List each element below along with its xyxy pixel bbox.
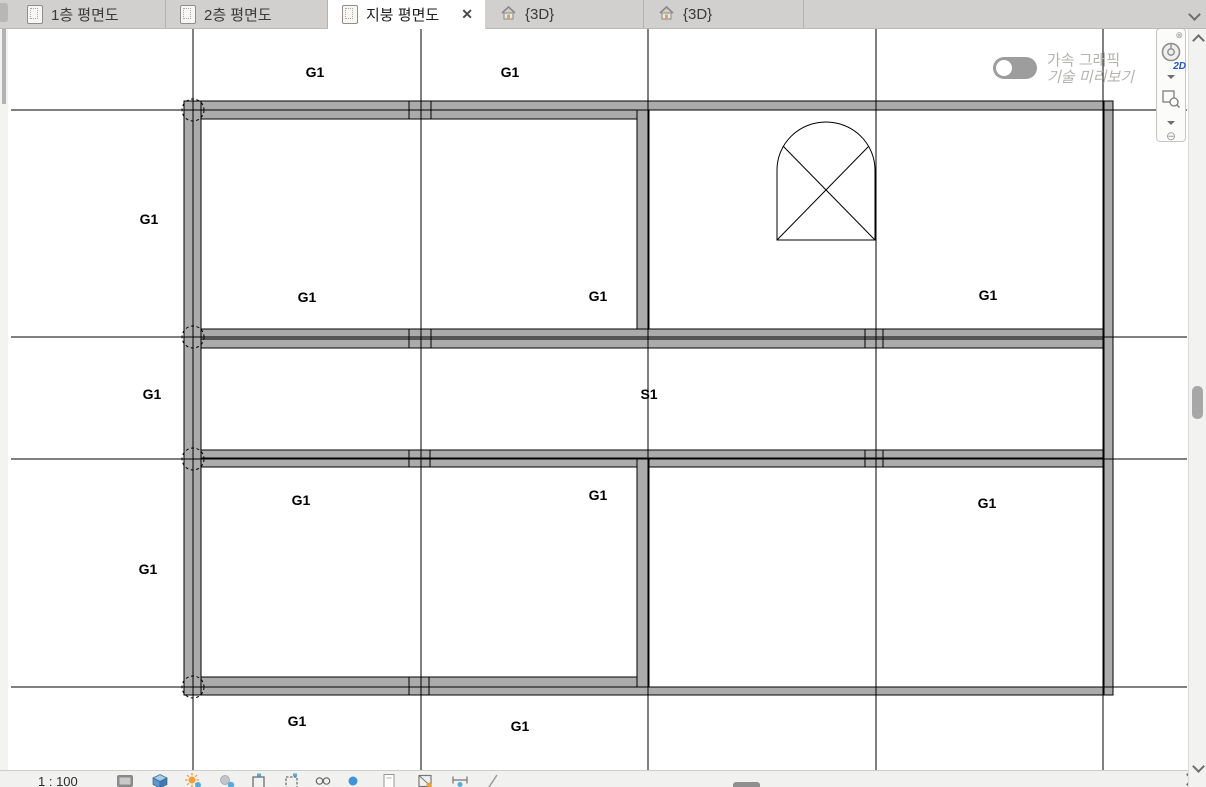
beam-tag[interactable]: G1 bbox=[292, 492, 311, 508]
arched-opening-symbol[interactable] bbox=[777, 122, 875, 240]
reveal-constraints-icon[interactable] bbox=[453, 777, 467, 787]
beam-tag[interactable]: G1 bbox=[979, 287, 998, 303]
tab-bar-empty-space bbox=[804, 0, 1182, 28]
tab-label: {3D} bbox=[525, 6, 554, 23]
view-tab-bar: 1층 평면도2층 평면도지붕 평면도✕{3D}{3D} bbox=[0, 0, 1206, 29]
structural-beam[interactable] bbox=[184, 677, 648, 695]
shadows-icon[interactable] bbox=[221, 776, 235, 787]
wheel-2d-mode-label: 2D bbox=[1173, 61, 1186, 72]
horizontal-scrollbar-thumb[interactable] bbox=[733, 782, 760, 787]
scroll-up-arrow[interactable] bbox=[1192, 34, 1205, 47]
toggle-label-line2: 기술 미리보기 bbox=[1047, 69, 1134, 86]
beam-tag[interactable]: G1 bbox=[978, 495, 997, 511]
structural-beam[interactable] bbox=[1104, 101, 1113, 695]
crop-view-icon[interactable] bbox=[253, 774, 264, 787]
wheel-dropdown-icon[interactable] bbox=[1167, 75, 1175, 79]
drawing-canvas[interactable]: G1G1G1G1G1G1G1S1G1G1G1G1G1G1 bbox=[0, 28, 1206, 770]
steering-wheel-icon bbox=[1160, 41, 1182, 63]
tab-label: 2층 평면도 bbox=[204, 4, 272, 25]
beam-tag[interactable]: G1 bbox=[143, 386, 162, 402]
detail-level-icon[interactable] bbox=[117, 775, 133, 787]
worksharing-display-icon[interactable] bbox=[489, 775, 497, 787]
tab-floor2-plan[interactable]: 2층 평면도 bbox=[166, 0, 328, 28]
temporary-hide-isolate-icon[interactable] bbox=[316, 778, 329, 784]
slab-tag[interactable]: S1 bbox=[640, 386, 657, 402]
accelerated-graphics-label: 가속 그래픽 기술 미리보기 bbox=[1047, 52, 1134, 86]
scale-button[interactable]: 1 : 100 bbox=[38, 774, 78, 787]
clipped-tab-fragment bbox=[0, 0, 13, 28]
accelerated-graphics-toggle[interactable] bbox=[993, 57, 1037, 79]
vertical-scrollbar-thumb[interactable] bbox=[1192, 386, 1203, 419]
close-icon[interactable]: ⊗ bbox=[1175, 30, 1183, 41]
beam-tag[interactable]: G1 bbox=[140, 211, 159, 227]
toggle-label-line1: 가속 그래픽 bbox=[1047, 52, 1134, 69]
structural-beam[interactable] bbox=[637, 110, 649, 329]
floor-plan-icon bbox=[180, 5, 196, 24]
opening-diagonal-line bbox=[783, 146, 875, 240]
opening-diagonal-line bbox=[777, 146, 869, 240]
steering-wheel-button[interactable]: 2D bbox=[1160, 41, 1182, 68]
beam-tag[interactable]: G1 bbox=[589, 288, 608, 304]
zoom-region-icon bbox=[1161, 89, 1181, 109]
scroll-right-arrow[interactable] bbox=[1181, 773, 1188, 786]
tab-3d-view-1[interactable]: {3D} bbox=[486, 0, 644, 28]
structural-beam[interactable] bbox=[648, 101, 1113, 110]
beam-tag[interactable]: G1 bbox=[298, 289, 317, 305]
tab-3d-view-2[interactable]: {3D} bbox=[644, 0, 804, 28]
beam-tag[interactable]: G1 bbox=[589, 487, 608, 503]
left-scrollbar-thumb[interactable] bbox=[2, 28, 6, 104]
zoom-out-icon[interactable]: ⊖ bbox=[1166, 131, 1176, 141]
house-icon bbox=[658, 5, 675, 24]
view-control-icons bbox=[115, 772, 515, 787]
vertical-scrollbar[interactable] bbox=[1188, 28, 1206, 787]
close-tab-button[interactable]: ✕ bbox=[459, 6, 475, 23]
tab-floor1-plan[interactable]: 1층 평면도 bbox=[13, 0, 166, 28]
visual-style-icon[interactable] bbox=[153, 775, 167, 787]
beam-tag[interactable]: G1 bbox=[306, 64, 325, 80]
accelerated-graphics-toggle-group: 가속 그래픽 기술 미리보기 bbox=[993, 52, 1134, 86]
navigation-bar: ⊗ 2D ⊖ bbox=[1156, 28, 1186, 142]
floor-plan-icon bbox=[342, 5, 358, 24]
sun-path-icon[interactable] bbox=[185, 773, 201, 787]
show-crop-region-icon[interactable] bbox=[286, 774, 297, 787]
chevron-down-icon bbox=[1188, 8, 1201, 21]
tab-label: 1층 평면도 bbox=[51, 4, 119, 25]
scroll-down-arrow[interactable] bbox=[1192, 760, 1205, 773]
reveal-hidden-elements-icon[interactable] bbox=[349, 777, 358, 786]
beam-tag[interactable]: G1 bbox=[139, 561, 158, 577]
left-scrollbar[interactable] bbox=[0, 28, 8, 770]
tab-list-dropdown-button[interactable] bbox=[1182, 0, 1206, 28]
beam-tag[interactable]: G1 bbox=[501, 64, 520, 80]
tab-label: {3D} bbox=[683, 6, 712, 23]
structural-beam[interactable] bbox=[648, 687, 1113, 695]
zoom-dropdown-icon[interactable] bbox=[1167, 121, 1175, 125]
toggle-knob bbox=[996, 60, 1012, 76]
tab-roof-plan[interactable]: 지붕 평면도✕ bbox=[328, 0, 486, 29]
structural-beam[interactable] bbox=[637, 459, 649, 687]
show-analytical-model-icon[interactable] bbox=[419, 776, 432, 787]
tab-label: 지붕 평면도 bbox=[366, 4, 439, 25]
floor-plan-icon bbox=[27, 5, 43, 24]
temporary-view-properties-icon[interactable] bbox=[384, 775, 394, 787]
house-icon bbox=[500, 5, 517, 24]
beam-tag[interactable]: G1 bbox=[511, 718, 530, 734]
view-control-bar: 1 : 100 bbox=[0, 770, 1188, 787]
zoom-region-button[interactable] bbox=[1161, 89, 1181, 114]
beam-tag[interactable]: G1 bbox=[288, 713, 307, 729]
